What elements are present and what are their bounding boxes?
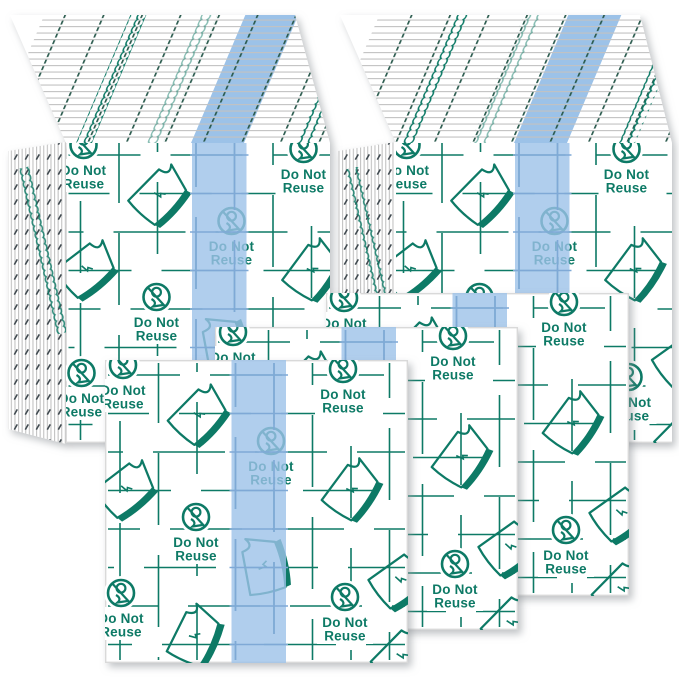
product-image-svg: Do Not Reuse	[0, 0, 679, 679]
stack-side-edge	[6, 140, 68, 446]
product-image: Do Not Reuse	[0, 0, 679, 679]
film-sheet-left	[86, 348, 444, 679]
sheet-face	[86, 348, 444, 679]
